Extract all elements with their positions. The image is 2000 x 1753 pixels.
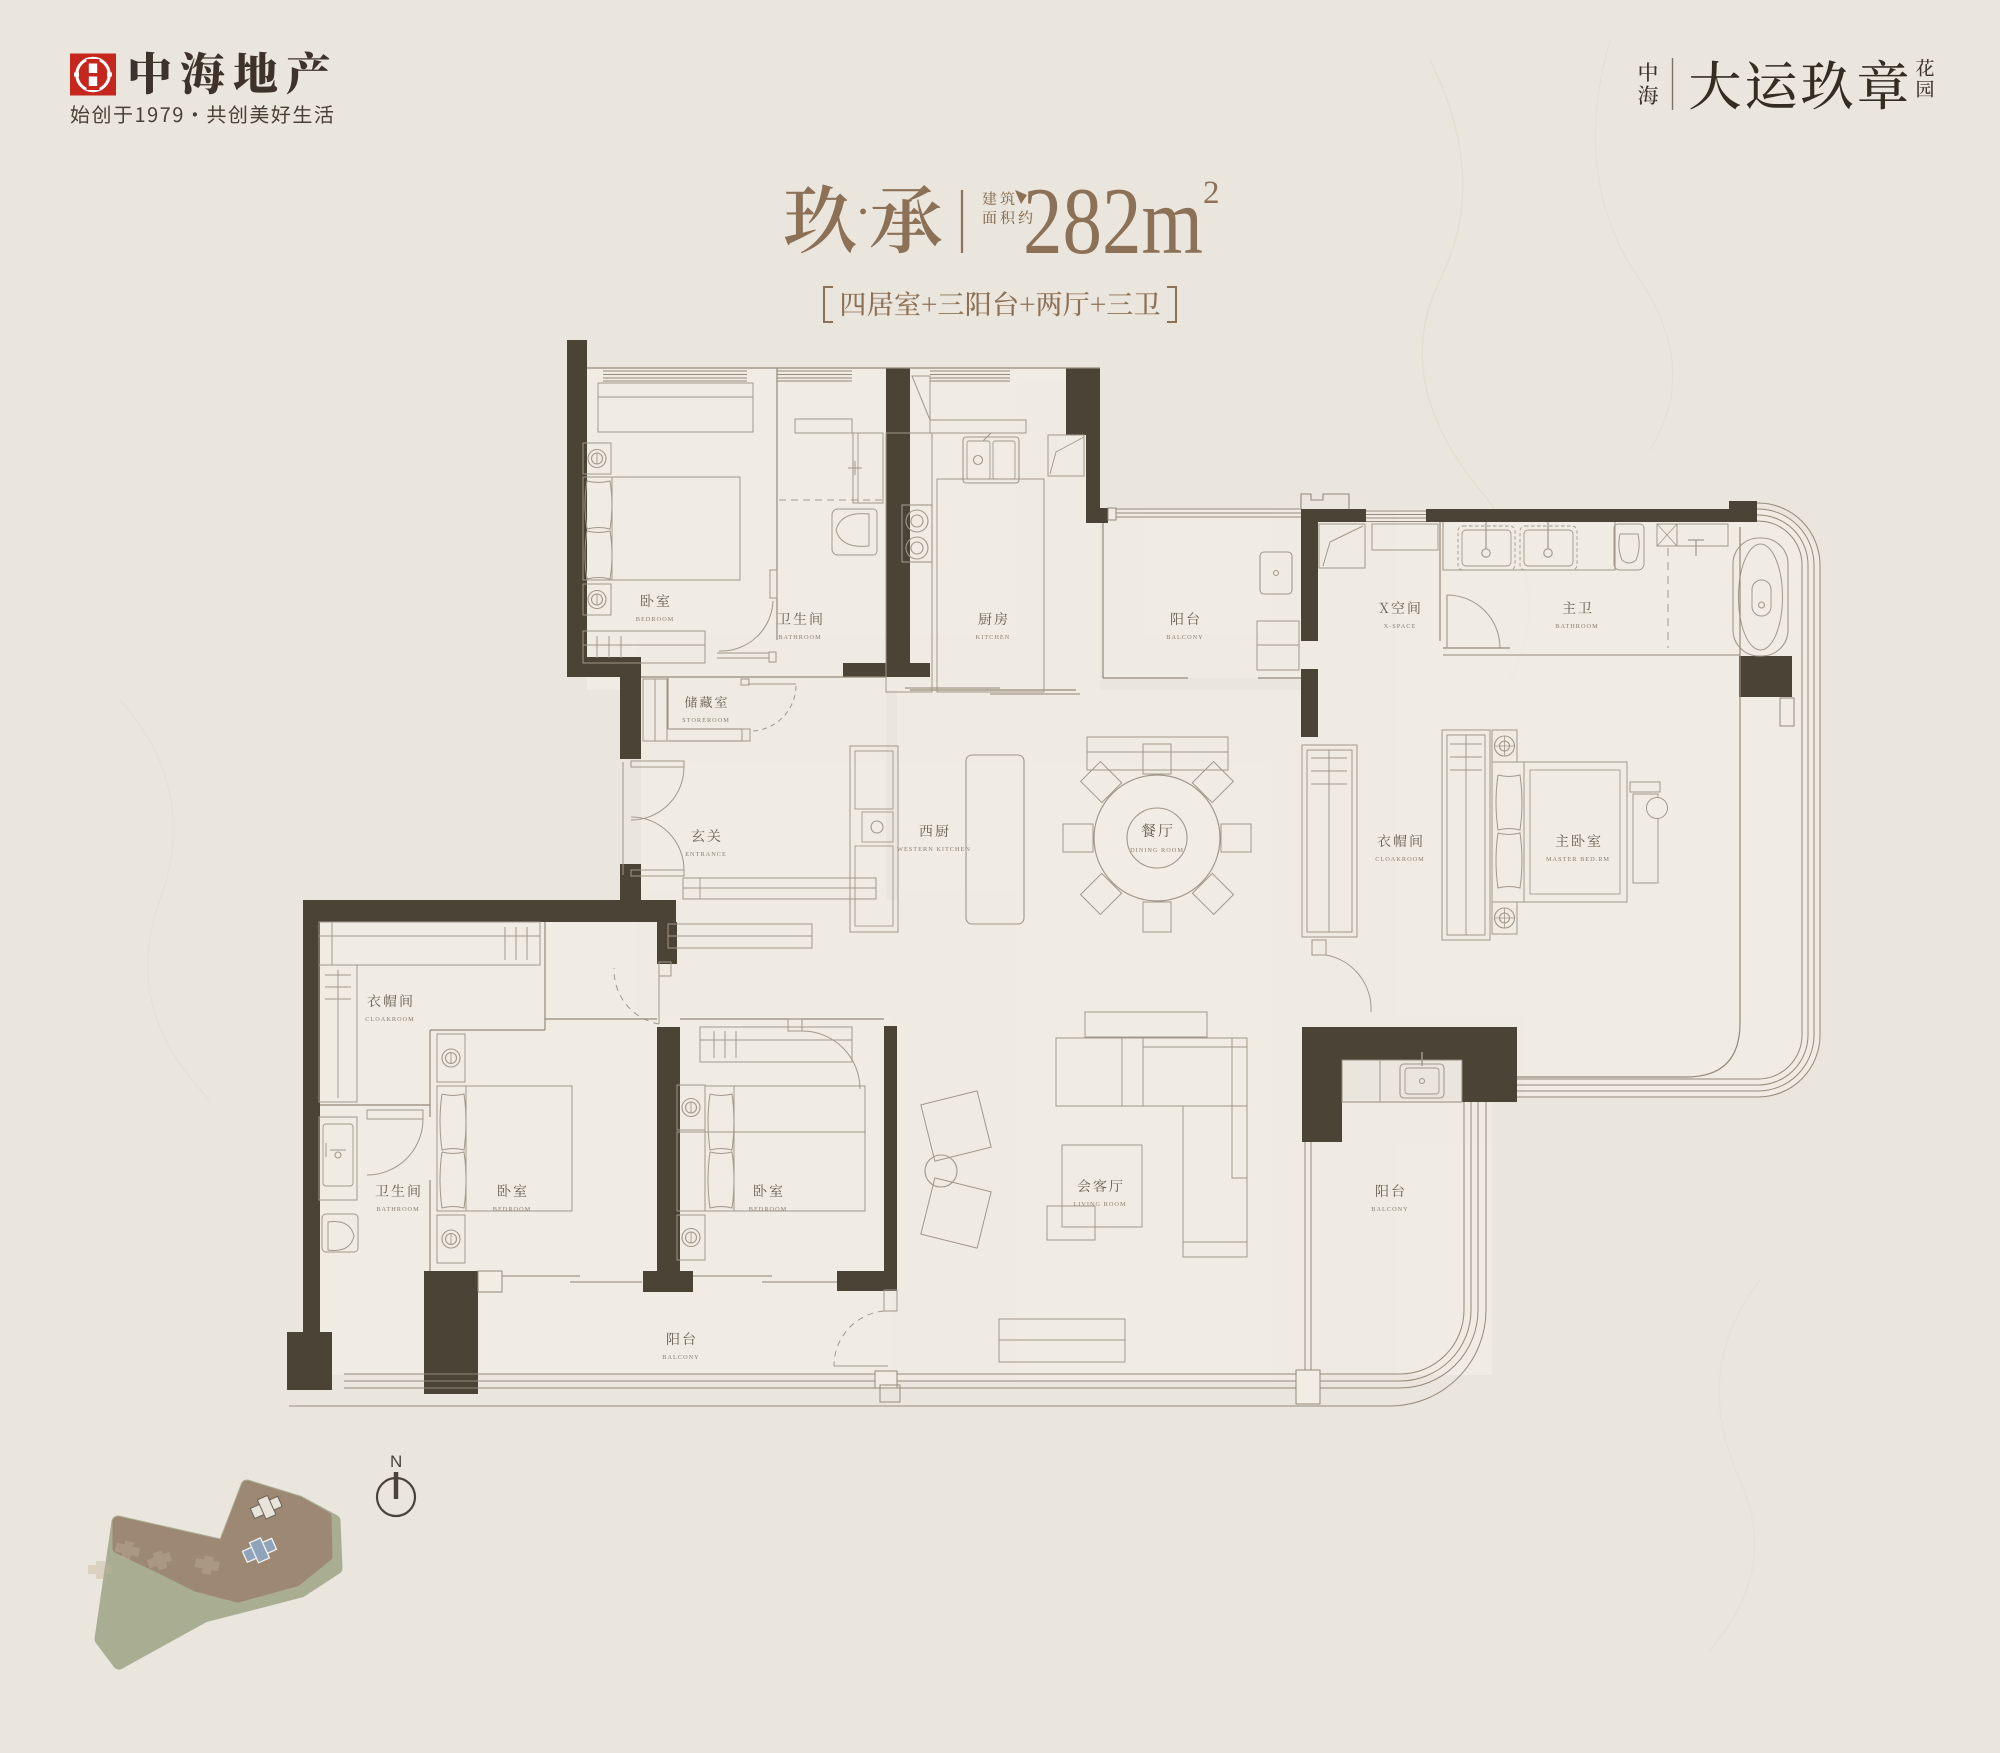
svg-text:MASTER BED.RM: MASTER BED.RM bbox=[1546, 856, 1610, 863]
svg-text:KITCHEN: KITCHEN bbox=[976, 634, 1011, 641]
svg-text:BALCONY: BALCONY bbox=[1166, 634, 1203, 641]
svg-text:BEDROOM: BEDROOM bbox=[493, 1206, 532, 1213]
svg-text:CLOAKROOM: CLOAKROOM bbox=[1375, 856, 1425, 863]
svg-text:BALCONY: BALCONY bbox=[662, 1354, 699, 1361]
svg-text:LIVING ROOM: LIVING ROOM bbox=[1073, 1201, 1126, 1208]
svg-text:2: 2 bbox=[1203, 175, 1220, 211]
svg-text:BATHROOM: BATHROOM bbox=[778, 634, 821, 641]
svg-text:ENTRANCE: ENTRANCE bbox=[685, 851, 727, 858]
svg-text:WESTERN KITCHEN: WESTERN KITCHEN bbox=[897, 846, 971, 853]
svg-text:BATHROOM: BATHROOM bbox=[376, 1206, 419, 1213]
svg-text:N: N bbox=[390, 1452, 402, 1471]
svg-text:X-SPACE: X-SPACE bbox=[1384, 623, 1417, 630]
svg-text:DINING ROOM: DINING ROOM bbox=[1130, 847, 1184, 854]
svg-text:BEDROOM: BEDROOM bbox=[749, 1206, 788, 1213]
svg-text:STOREROOM: STOREROOM bbox=[682, 717, 730, 724]
svg-text:BATHROOM: BATHROOM bbox=[1555, 623, 1598, 630]
svg-text:CLOAKROOM: CLOAKROOM bbox=[365, 1016, 415, 1023]
svg-text:BALCONY: BALCONY bbox=[1371, 1206, 1408, 1213]
svg-text:282m: 282m bbox=[1023, 168, 1203, 274]
svg-text:BEDROOM: BEDROOM bbox=[636, 616, 675, 623]
